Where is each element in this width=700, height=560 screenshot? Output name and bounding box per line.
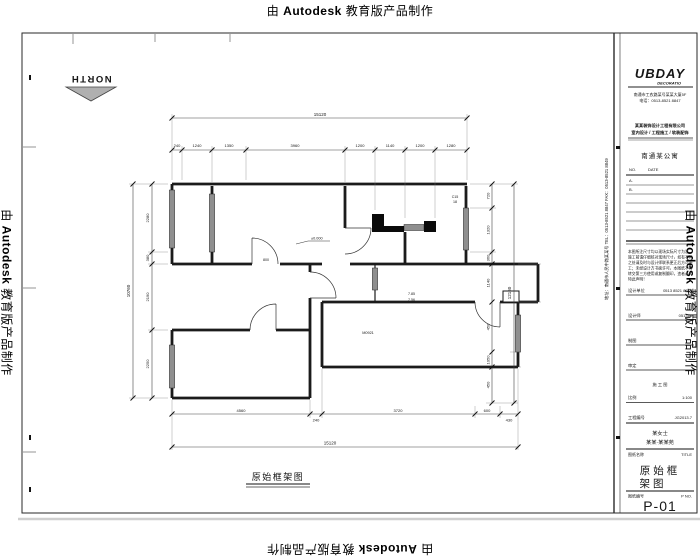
company-contact: 地址：南通市人民中路某某号 TEL：0513-8521 8847 FAX：051… — [603, 158, 610, 300]
plan-columns — [372, 214, 436, 232]
dim-label: 3960 — [291, 143, 301, 148]
sheet-number-block: 图纸编号 P NO. P-01 — [626, 491, 694, 514]
company-slogan: 某某装饰设计工程有限公司 室内设计 / 工程施工 / 软装配饰 — [628, 122, 693, 140]
logo-text: UBDAY — [635, 66, 686, 81]
field-value: 0513 8521 8847 — [663, 288, 693, 293]
dim-label: 1320 — [486, 225, 491, 235]
dim-label: 1140 — [386, 143, 395, 148]
drawing-title: 原始框架图 — [246, 471, 310, 487]
note-line: 施工前请仔细核对现场尺寸，如有不符 — [628, 255, 693, 260]
title-block: UBDAY DECORATIO 南通市工农路某号某某大厦5F 电话：0513-8… — [626, 66, 694, 514]
titleblock-notes: 本图所注尺寸均以现场实际尺寸为准， 施工前请仔细核对现场尺寸，如有不符 之处请及… — [628, 249, 693, 282]
dim-label: 1140 — [486, 278, 491, 287]
field-label: 设计单位 — [628, 287, 645, 294]
sheet-title: 原始框 — [640, 464, 681, 477]
sheet-number: P-01 — [643, 498, 677, 514]
dim-note: 7.85 — [408, 292, 415, 296]
dim-label: 15120 — [324, 441, 337, 446]
dim-label: 3720 — [394, 408, 404, 413]
door-width-label: 800 — [263, 258, 269, 262]
dim-label: 2280 — [145, 213, 150, 223]
titleblock-fields: 设计单位 0513 8521 8847 设计师 051316 制图 审定 施 工… — [626, 287, 694, 423]
dim-label: 360 — [486, 254, 491, 261]
dim-label: 240 — [313, 418, 320, 423]
rev-row: B. — [629, 187, 633, 192]
company-address: 南通市工农路某号某某大厦5F 电话：0513-8521 8847 — [634, 91, 687, 103]
sheet-title-label: 图纸名称 — [628, 451, 644, 457]
dim-label: 1350 — [225, 143, 235, 148]
plan-walls — [172, 184, 538, 398]
address-line: 电话：0513-8521 8847 — [639, 97, 681, 103]
project-name: 南通某公寓 — [641, 151, 679, 160]
address-line: 南通市工农路某号某某大厦5F — [634, 91, 687, 97]
sheet-no-en: P NO. — [681, 494, 692, 499]
drawing-title-label: 原始框架图 — [252, 471, 305, 482]
note-line: 之处请及时与设计师联系更正后方可施 — [628, 260, 693, 265]
dim-label: 430 — [506, 418, 513, 423]
revision-table: NO. DATE A. B. — [626, 167, 694, 244]
sheet-title-block: 图纸名称 TITLE 原始框 架图 — [626, 449, 694, 490]
north-label: NORTH — [70, 73, 111, 84]
dim-label: 450 — [486, 381, 491, 388]
slogan-line: 某某装饰设计工程有限公司 — [635, 122, 685, 129]
field-label: 设计师 — [628, 312, 641, 319]
stage-label: 施 工 图 — [653, 381, 668, 388]
dim-label: 2190 — [145, 292, 150, 302]
field-label: 审定 — [628, 362, 636, 369]
sheet-title-en: TITLE — [681, 452, 692, 457]
logo-subtext: DECORATIO — [657, 81, 682, 86]
sheet-title: 架图 — [640, 478, 667, 490]
client-block: 某女士 某某·某某苑 — [646, 429, 674, 446]
window-tag: C15 — [452, 195, 459, 199]
dim-label: 15120 — [314, 112, 327, 117]
field-label: 比例 — [628, 394, 636, 401]
sheet-frame — [18, 33, 700, 519]
dim-chain-top: 15120 240 1240 1350 3960 1200 1140 1200 … — [170, 112, 470, 153]
floor-plan: ±0.000 C15 18 7.85 7.56 800 M0921 — [126, 112, 541, 450]
cad-sheet: 由 Autodesk 教育版产品制作 由 Autodesk 教育版产品制作 由 … — [0, 0, 700, 560]
window-tag: 18 — [453, 200, 457, 204]
rev-row: A. — [629, 178, 633, 183]
dim-label: 12160 — [507, 286, 512, 299]
client-line: 某某·某某苑 — [646, 438, 674, 446]
dim-label: 720 — [486, 192, 491, 199]
dim-label: 1280 — [447, 143, 457, 148]
field-label: 制图 — [628, 337, 636, 344]
level-mark: ±0.000 — [311, 237, 323, 241]
field-value: 1:100 — [682, 395, 693, 400]
north-arrow: NORTH — [66, 73, 116, 101]
field-value: JG2013.7 — [675, 415, 693, 420]
dim-label: 10760 — [126, 284, 131, 297]
north-triangle-icon — [66, 87, 116, 101]
note-line: 特此声明！ — [628, 277, 647, 282]
dim-label: 4560 — [237, 408, 247, 413]
dim-label: 1200 — [416, 143, 426, 148]
dim-label: 2250 — [145, 359, 150, 369]
door-tag: M0921 — [362, 331, 374, 335]
slogan-line: 室内设计 / 工程施工 / 软装配饰 — [631, 129, 689, 136]
dim-extension-lines — [129, 114, 541, 450]
dim-label: 240 — [174, 143, 181, 148]
dim-label: 600 — [484, 408, 491, 413]
client-line: 某女士 — [652, 429, 668, 437]
dim-label: 1240 — [193, 143, 203, 148]
dim-chain-bottom: 4560 240 3720 600 430 15120 — [170, 408, 521, 450]
dim-chain-right: 720 1320 360 1140 450 1050 450 12160 — [486, 182, 517, 406]
dim-label: 1200 — [356, 143, 366, 148]
company-logo: UBDAY DECORATIO — [628, 66, 693, 87]
dim-chain-left: 2280 380 2190 2250 10760 — [126, 182, 155, 401]
note-line: 工；未经设计方书面许可，本图纸不得 — [628, 266, 693, 271]
sheet-no-label: 图纸编号 — [628, 493, 644, 499]
note-line: 转交第三方使用或复制翻印，违者必究 — [628, 271, 693, 276]
dim-note: 7.56 — [408, 298, 415, 302]
dim-label: 450 — [486, 323, 491, 330]
field-value: 051316 — [679, 313, 693, 318]
dim-label: 380 — [145, 254, 150, 261]
rev-col-date: DATE — [648, 167, 659, 172]
dim-label: 1050 — [486, 355, 491, 365]
field-label: 工程编号 — [628, 414, 645, 421]
rev-col-no: NO. — [629, 167, 636, 172]
note-line: 本图所注尺寸均以现场实际尺寸为准， — [628, 249, 693, 254]
